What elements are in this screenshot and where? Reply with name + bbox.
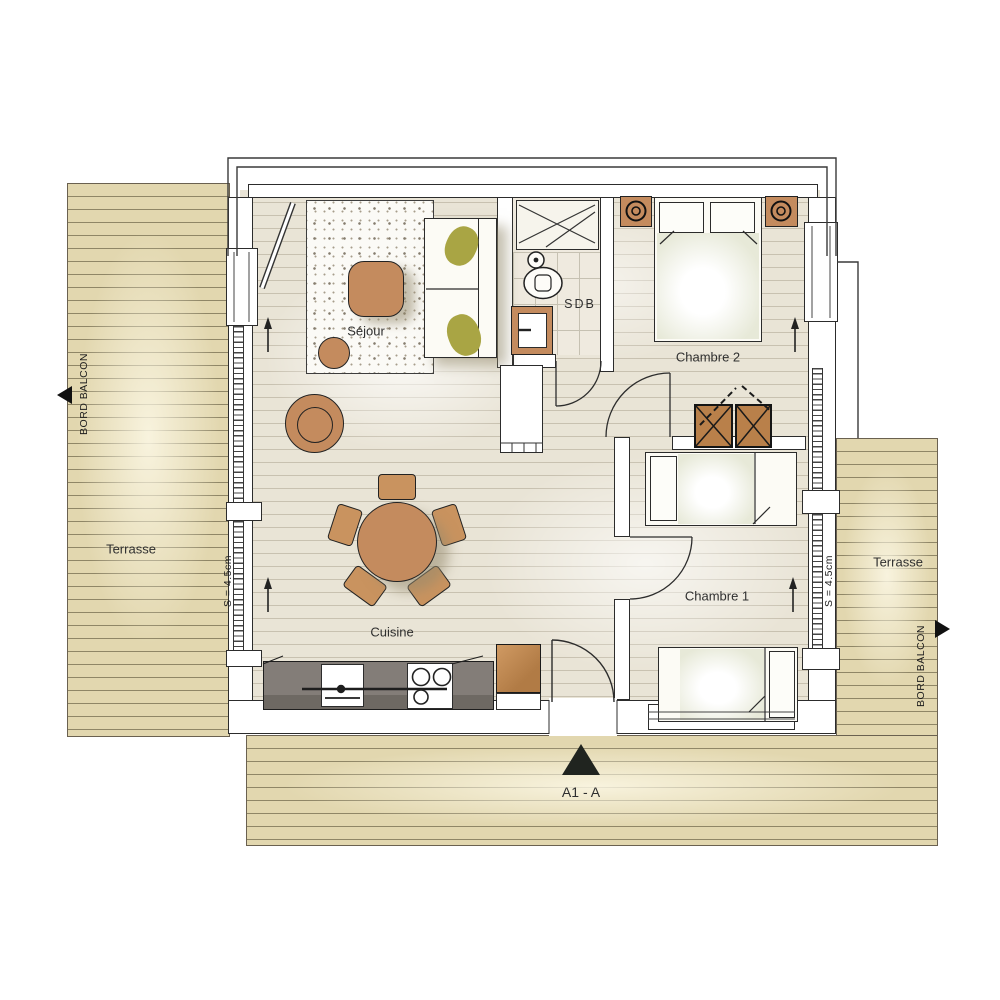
kitchen-tall-cabinet <box>496 644 541 693</box>
entry-door-opening <box>549 698 617 736</box>
terrace-left-deck <box>67 183 230 737</box>
label-sdb: SDB <box>564 297 596 311</box>
double-bed-duvet <box>657 233 759 339</box>
kitchen-sink <box>321 664 364 707</box>
washbasin <box>518 313 547 348</box>
round-chair-inner-ring <box>297 407 333 443</box>
single-bed-bottom-duvet <box>680 649 764 720</box>
hall-closet <box>500 365 543 453</box>
kitchen-cooktop <box>407 663 453 709</box>
double-bed-pillow-left <box>659 202 704 233</box>
partition-hall-chambre1-upper <box>614 437 630 537</box>
window-right-sill-1 <box>802 490 840 514</box>
label-chambre1: Chambre 1 <box>685 589 749 604</box>
single-bed-bottom-pillow <box>769 651 795 718</box>
floor-plan-canvas: Séjour Cuisine SDB Chambre 2 Chambre 1 T… <box>0 0 1000 1000</box>
nightstand-right <box>765 196 798 227</box>
window-left-sill-2 <box>226 650 262 667</box>
double-bed-pillow-right <box>710 202 755 233</box>
label-chambre2: Chambre 2 <box>676 350 740 365</box>
pouf <box>318 337 350 369</box>
window-left-glazing-2 <box>233 521 244 650</box>
label-slope-left: S = 4.5cm <box>222 555 234 607</box>
dining-chair-top <box>378 474 416 500</box>
window-right-sill-2 <box>802 648 840 670</box>
wall-top <box>248 184 818 198</box>
single-bed-top-pillow <box>650 456 677 521</box>
label-section-marker: A1 - A <box>562 784 600 800</box>
coffee-table <box>348 261 404 317</box>
partition-sdb-chambre2 <box>600 197 614 372</box>
shower-tray <box>516 200 599 250</box>
nightstand-left <box>620 196 652 227</box>
label-terrasse-left: Terrasse <box>106 542 156 557</box>
window-left-upper <box>226 248 258 326</box>
label-slope-right: S = 4.5cm <box>823 555 835 607</box>
single-bed-top-duvet <box>678 454 754 524</box>
label-bord-balcon-right: BORD BALCON <box>915 625 927 707</box>
window-left-glazing-1 <box>233 326 244 502</box>
partition-hall-chambre1-lower <box>614 599 630 700</box>
window-right-glazing-2 <box>812 514 823 648</box>
window-right-upper <box>804 222 838 322</box>
kitchen-cabinet-base <box>496 693 541 710</box>
wardrobe-right-module <box>735 404 772 448</box>
label-cuisine: Cuisine <box>370 625 413 640</box>
dining-table <box>357 502 437 582</box>
kitchen-counter <box>263 661 494 710</box>
window-left-sill-1 <box>226 502 262 521</box>
label-terrasse-right: Terrasse <box>873 555 923 570</box>
wardrobe-left-module <box>694 404 733 448</box>
label-bord-balcon-left: BORD BALCON <box>78 353 90 435</box>
window-right-glazing-1 <box>812 368 823 490</box>
label-sejour: Séjour <box>347 324 385 339</box>
